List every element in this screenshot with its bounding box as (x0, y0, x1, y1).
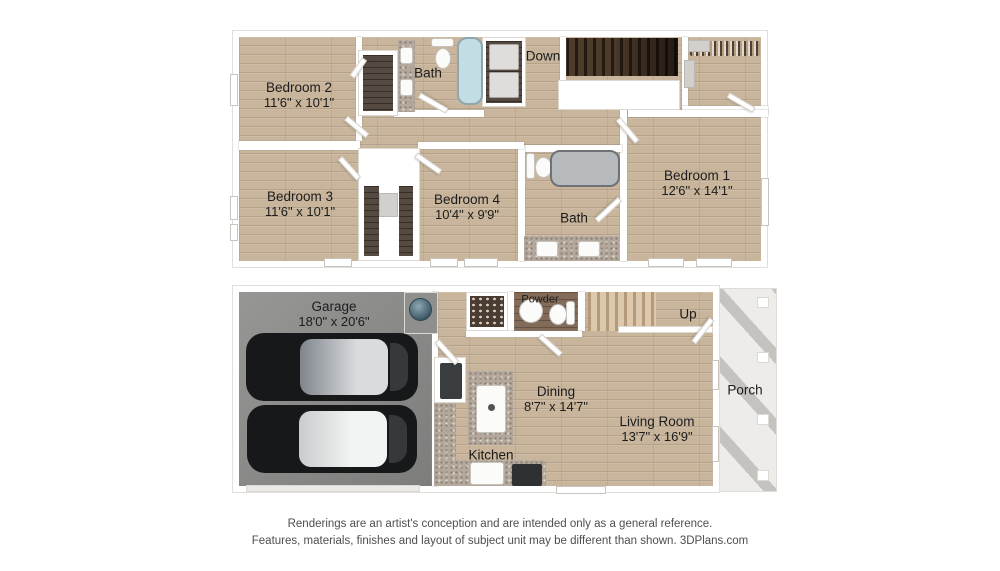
room-dims: 10'4" x 9'9" (434, 207, 500, 222)
room-name: Bedroom 4 (434, 192, 500, 207)
room-dims: 12'6" x 14'1" (661, 183, 732, 198)
closet-shelf (684, 60, 695, 88)
kitchen-sink (470, 462, 504, 485)
refrigerator (440, 363, 462, 399)
bedroom1-label: Bedroom 1 12'6" x 14'1" (661, 168, 732, 198)
sink (400, 79, 413, 96)
bathtub (550, 150, 620, 187)
room-dims: 13'7" x 16'9" (619, 429, 694, 444)
washer (489, 44, 519, 70)
bathtub (457, 37, 483, 105)
room-dims: 18'0" x 20'6" (298, 314, 369, 329)
disclaimer: Renderings are an artist's conception an… (0, 516, 1000, 549)
garage-label: Garage 18'0" x 20'6" (298, 299, 369, 329)
window (230, 74, 238, 106)
room-name: Bedroom 1 (661, 168, 732, 183)
porch-post (757, 470, 769, 481)
room-name: Kitchen (468, 448, 513, 463)
bath-main-label: Bath (560, 211, 588, 226)
car (247, 405, 417, 473)
stairs-down (566, 38, 678, 76)
closet-interior (363, 55, 393, 111)
water-heater (409, 298, 432, 321)
bedroom2-label: Bedroom 2 11'6" x 10'1" (264, 80, 334, 110)
window (230, 224, 238, 241)
closet-interior (364, 186, 379, 256)
room-name: Down (526, 49, 561, 64)
window (696, 258, 732, 267)
porch-post (757, 352, 769, 363)
room-dims: 8'7" x 14'7" (524, 399, 588, 414)
car-windshield (389, 415, 407, 463)
wall (239, 141, 360, 150)
sink (536, 241, 558, 257)
garage-door (246, 485, 420, 492)
toilet-tank (431, 38, 454, 47)
toilet-tank (526, 153, 535, 179)
room-name: Up (679, 307, 696, 322)
wall (578, 292, 585, 331)
window (556, 486, 606, 494)
closet-shelf (379, 193, 398, 217)
dryer (489, 72, 519, 98)
wall (560, 37, 566, 80)
wall (628, 110, 768, 117)
room-name: Bedroom 3 (265, 189, 335, 204)
car-roof-glass (299, 411, 387, 467)
car-windshield (390, 343, 408, 391)
wall (508, 292, 514, 331)
window (712, 426, 719, 462)
bedroom4-label: Bedroom 4 10'4" x 9'9" (434, 192, 500, 222)
room-name: Powder (521, 293, 558, 308)
window (761, 178, 769, 226)
window (712, 360, 719, 390)
car (246, 333, 418, 401)
window (648, 258, 684, 267)
wall (466, 331, 582, 337)
porch-label: Porch (727, 383, 762, 398)
room-name: Porch (727, 383, 762, 398)
window (230, 196, 238, 220)
porch-post (757, 414, 769, 425)
window (324, 258, 352, 267)
room-name: Bedroom 2 (264, 80, 334, 95)
room-dims: 11'6" x 10'1" (264, 95, 334, 110)
stair-void (558, 80, 680, 110)
disclaimer-line-1: Renderings are an artist's conception an… (0, 516, 1000, 533)
stairs-up-label: Up (679, 307, 696, 322)
closet-shelf (688, 40, 710, 52)
powder-label: Powder (521, 293, 558, 308)
room-name: Dining (524, 384, 588, 399)
faucet (488, 404, 495, 411)
car-roof-glass (300, 339, 388, 395)
toilet-tank (566, 301, 575, 325)
room-name: Bath (560, 211, 588, 226)
wall (418, 142, 524, 149)
stove (512, 464, 542, 486)
disclaimer-line-2: Features, materials, finishes and layout… (0, 533, 1000, 550)
sink (578, 241, 600, 257)
porch-post (757, 297, 769, 308)
sink (400, 47, 413, 64)
stairs-down-label: Down (526, 49, 561, 64)
room-name: Garage (298, 299, 369, 314)
window (430, 258, 458, 267)
kitchen-label: Kitchen (468, 448, 513, 463)
window (464, 258, 498, 267)
dining-label: Dining 8'7" x 14'7" (524, 384, 588, 414)
bedroom3-label: Bedroom 3 11'6" x 10'1" (265, 189, 335, 219)
bath-top-label: Bath (414, 66, 442, 81)
closet-interior (399, 186, 413, 256)
room-name: Bath (414, 66, 442, 81)
living-room-label: Living Room 13'7" x 16'9" (619, 414, 694, 444)
room-dims: 11'6" x 10'1" (265, 204, 335, 219)
floorplan-canvas: Bedroom 2 11'6" x 10'1" Bath Down Bedroo… (0, 0, 1000, 571)
closet-interior (470, 296, 504, 327)
room-name: Living Room (619, 414, 694, 429)
